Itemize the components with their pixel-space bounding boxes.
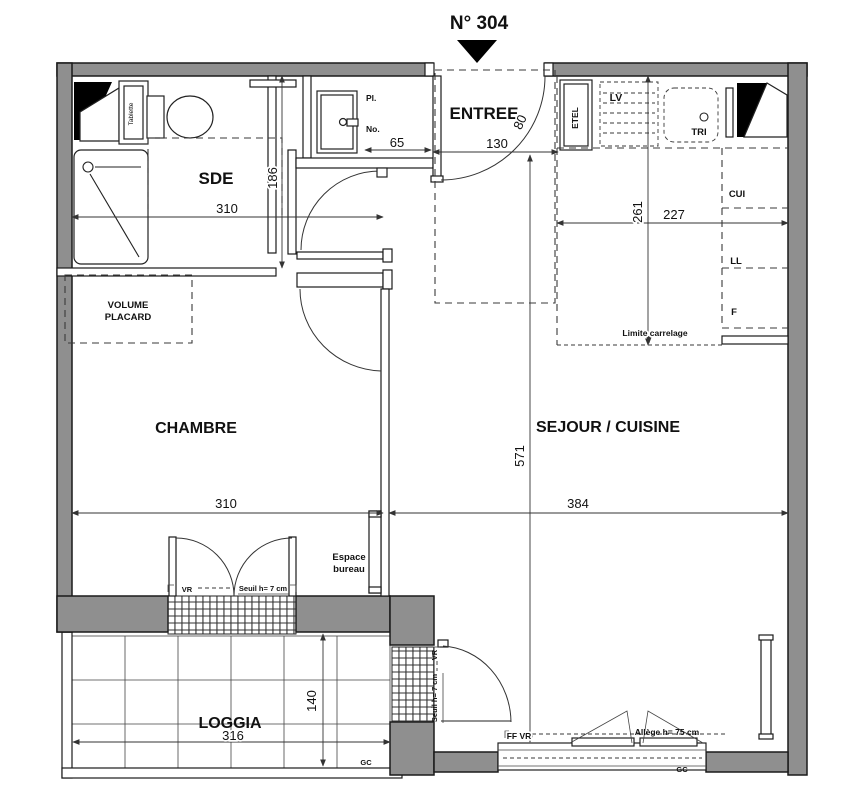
room-label-sde: SDE	[199, 169, 234, 188]
dim-cuisine-width: 227	[663, 207, 685, 222]
french-door-leaf-left	[169, 537, 176, 596]
dim-placard-width: 65	[390, 135, 404, 150]
seuil-label-left: Seuil h= 7 cm	[239, 584, 287, 593]
seuil-label-right: Seuil h= 7 cm	[430, 674, 439, 722]
vr-label-left: VR	[182, 585, 193, 594]
entry-door-leaf	[433, 76, 441, 178]
cooker-label: CUI	[729, 189, 745, 200]
pipe-chase	[377, 168, 387, 177]
room-label-chambre: CHAMBRE	[155, 420, 237, 437]
sejour-loggia-door-sill	[392, 647, 434, 722]
volume-placard-label-1: VOLUME	[108, 300, 149, 311]
toilet-bowl	[167, 96, 213, 138]
volume-placard-label-2: PLACARD	[105, 312, 152, 323]
dim-sde-width: 310	[216, 201, 238, 216]
towel-rail	[250, 80, 296, 87]
gc-label-sejour: GC	[676, 765, 688, 774]
french-door-leaf-right	[289, 537, 296, 596]
dim-entree-width: 130	[486, 136, 508, 151]
toilet-cistern	[147, 96, 164, 138]
loggia-wall-bottom	[62, 768, 402, 778]
loggia-wall-left	[62, 632, 72, 778]
gc-label-loggia: GC	[360, 758, 372, 767]
allege-label: Allège h= 75 cm	[635, 727, 700, 737]
espace-bureau-label-2: bureau	[333, 564, 365, 575]
desk	[369, 511, 381, 593]
counter-edge	[722, 336, 788, 344]
loggia-door-sill	[168, 596, 296, 634]
dim-sde-height: 186	[265, 167, 280, 189]
dim-chambre-width: 310	[215, 496, 237, 511]
washer-label: LL	[730, 256, 742, 267]
dim-cuisine-height: 261	[630, 201, 645, 223]
dim-sejour-height: 571	[512, 445, 527, 467]
fridge-label: F	[731, 307, 737, 318]
unit-title: N° 304	[450, 13, 509, 34]
window-panel-left	[572, 738, 634, 746]
etel-label: ETEL	[570, 107, 580, 129]
tablette-label: Tablette	[128, 102, 135, 125]
room-label-entree: ENTREE	[450, 104, 519, 123]
dim-loggia-depth: 140	[304, 690, 319, 712]
closet-handle	[347, 119, 358, 126]
ff-vr-label: FF VR	[507, 731, 532, 741]
sink-label: TRI	[691, 127, 706, 138]
dishwasher-label: LV	[610, 92, 623, 104]
radiator	[761, 637, 771, 737]
vr-label-right: VR	[430, 649, 439, 660]
limite-carrelage-label: Limite carrelage	[622, 328, 687, 338]
floor-plan-drawing: N° 304 SDE ENTREE CHAMBRE SEJOUR / CUISI…	[0, 0, 849, 800]
espace-bureau-label-1: Espace	[332, 552, 365, 563]
floor-plan-page: N° 304 SDE ENTREE CHAMBRE SEJOUR / CUISI…	[0, 0, 849, 800]
entry-jamb-left	[425, 63, 434, 76]
closet-label-pl: Pl.	[366, 93, 376, 103]
room-label-sejour: SEJOUR / CUISINE	[536, 419, 680, 436]
dim-loggia-width: 316	[222, 728, 244, 743]
closet-label-no: No.	[366, 124, 380, 134]
window-panel-right	[640, 738, 697, 746]
dim-sejour-width: 384	[567, 496, 589, 511]
